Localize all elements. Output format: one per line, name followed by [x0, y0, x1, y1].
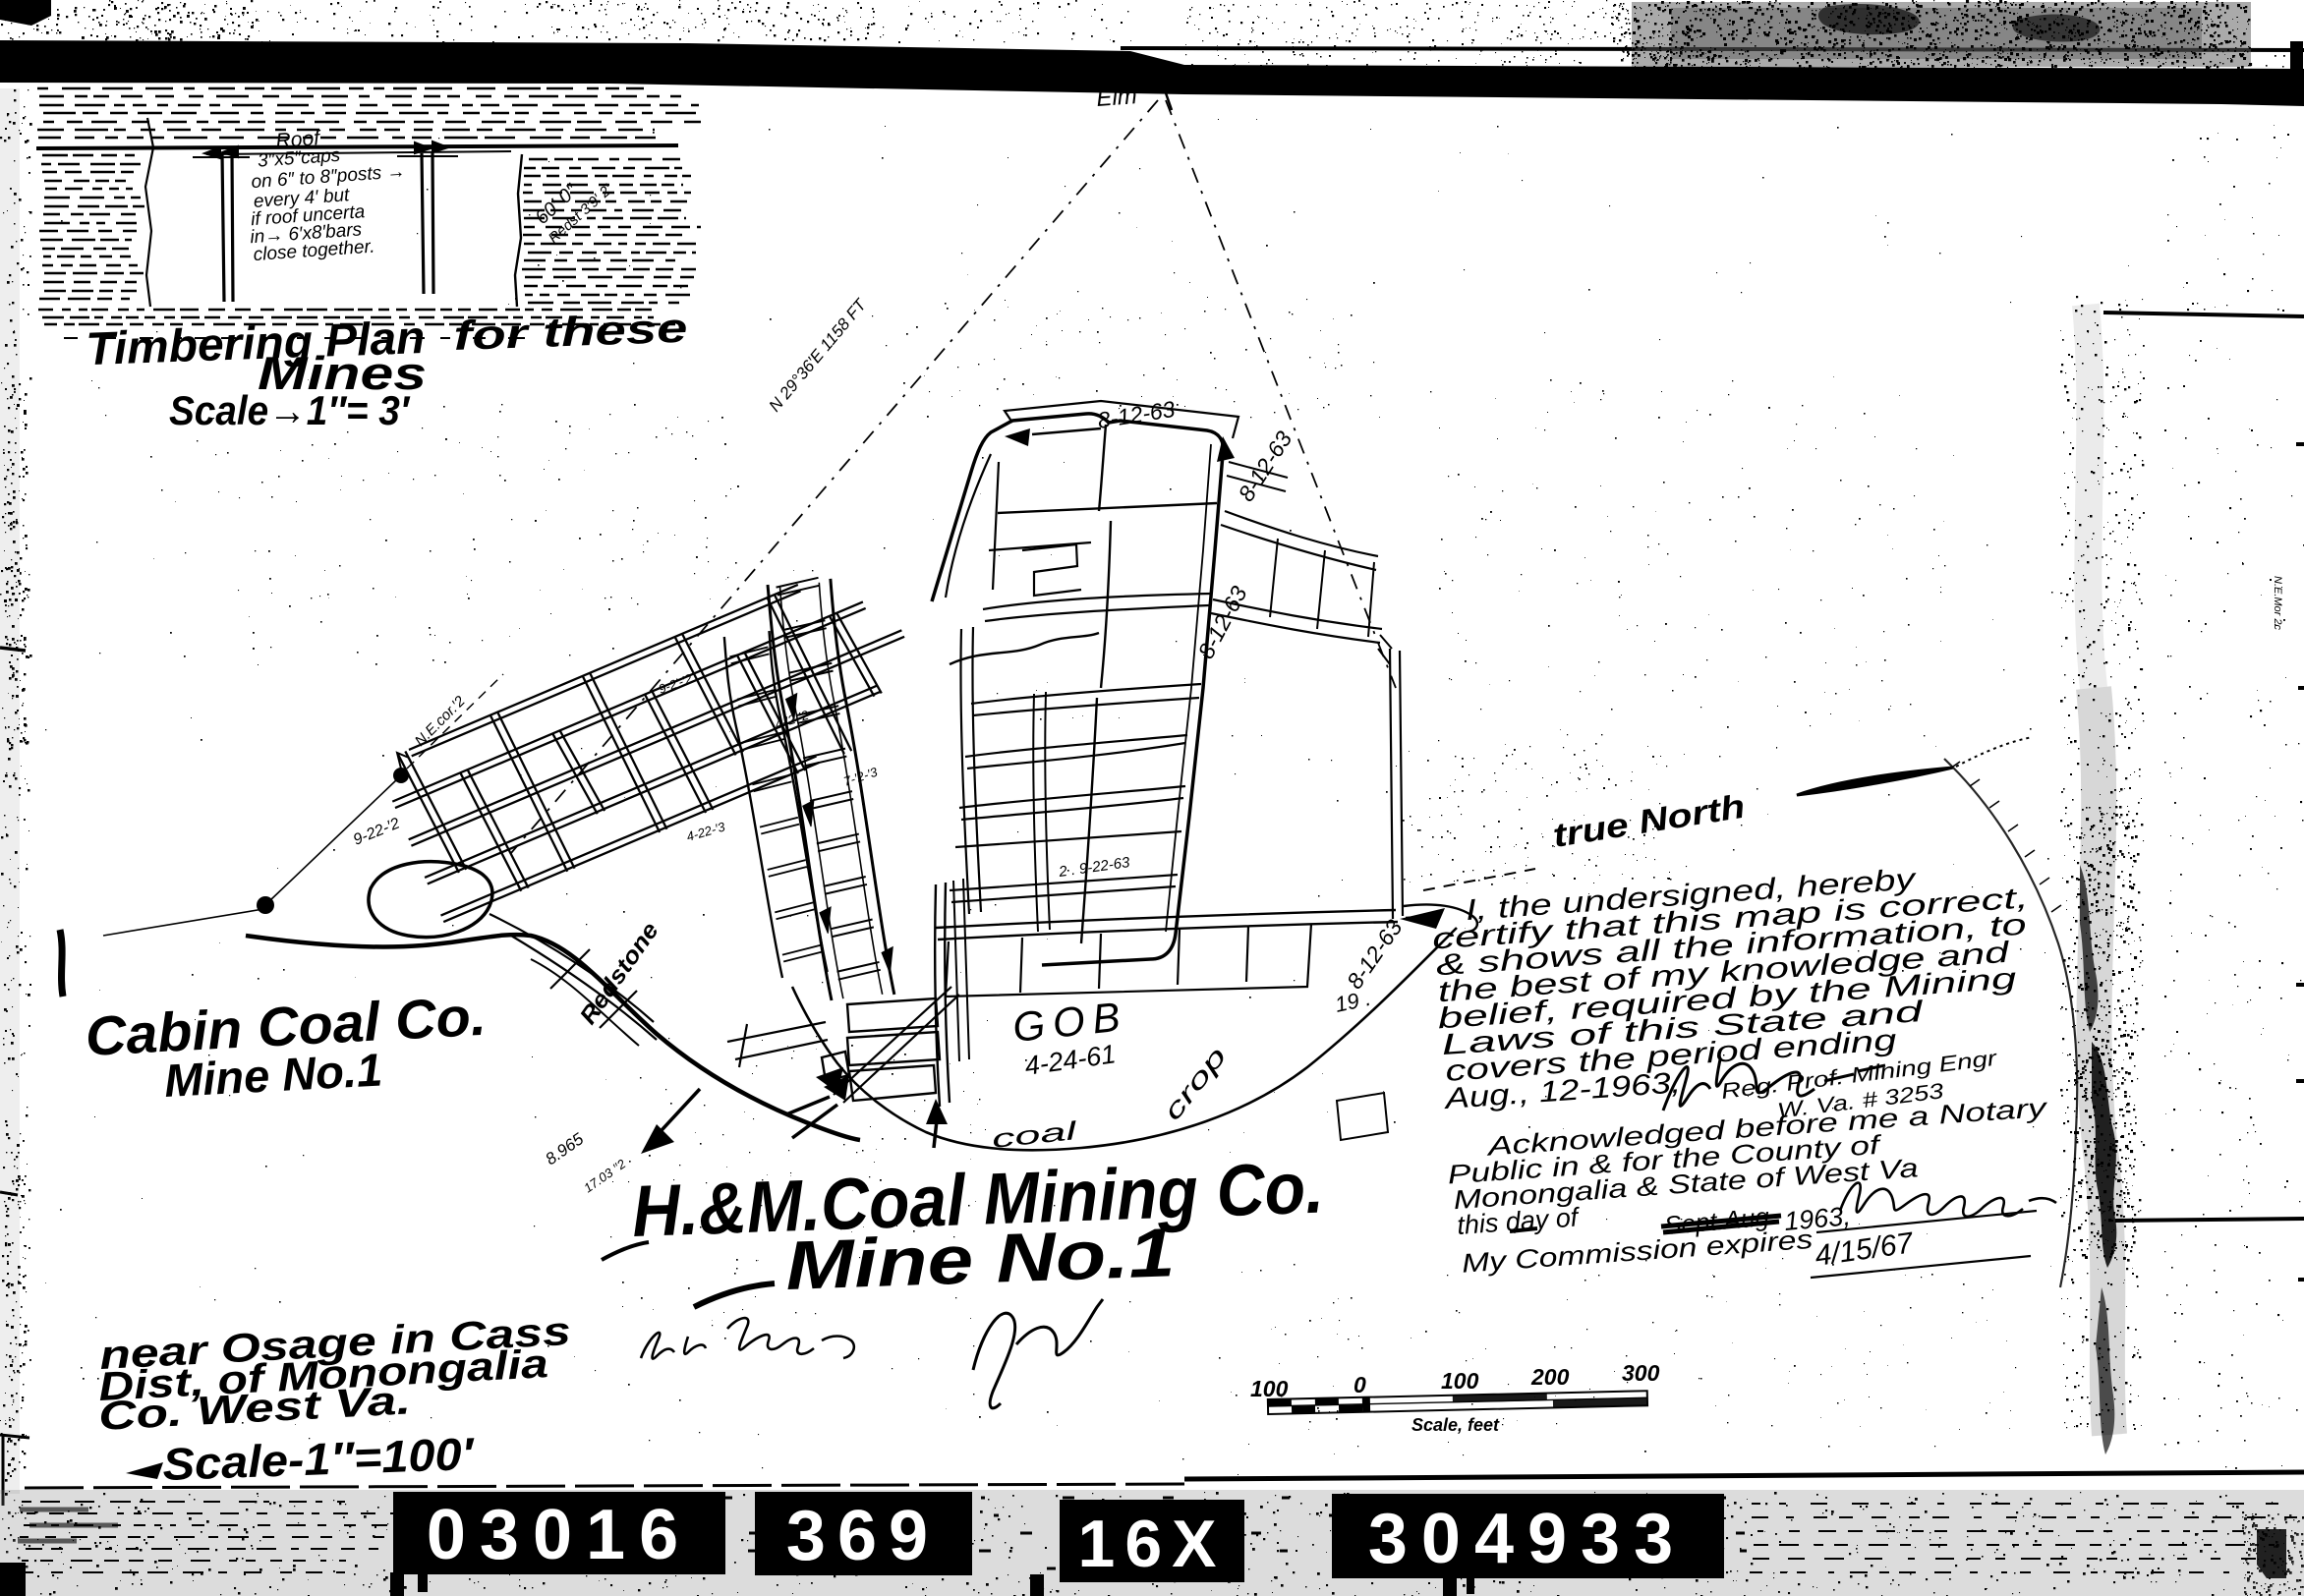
svg-text:for these: for these [453, 305, 688, 359]
svg-text:Scale, feet: Scale, feet [1411, 1415, 1500, 1435]
svg-text:Scale→1″= 3′: Scale→1″= 3′ [169, 387, 411, 433]
svg-text:03016: 03016 [427, 1496, 692, 1574]
svg-text:100: 100 [1250, 1376, 1289, 1401]
svg-text:304933: 304933 [1368, 1500, 1687, 1578]
svg-text:Mine No.1: Mine No.1 [784, 1214, 1176, 1304]
svg-text:100: 100 [1441, 1368, 1479, 1394]
svg-text:0: 0 [1354, 1372, 1366, 1397]
svg-text:200: 200 [1530, 1364, 1570, 1390]
svg-text:300: 300 [1622, 1360, 1660, 1386]
svg-text:Scale-1″=100′: Scale-1″=100′ [162, 1428, 477, 1490]
svg-text:16X: 16X [1078, 1507, 1227, 1581]
svg-text:369: 369 [786, 1497, 940, 1575]
svg-text:N.E.Mor 2c: N.E.Mor 2c [2272, 576, 2283, 631]
svg-text:Elm: Elm [1096, 83, 1138, 112]
